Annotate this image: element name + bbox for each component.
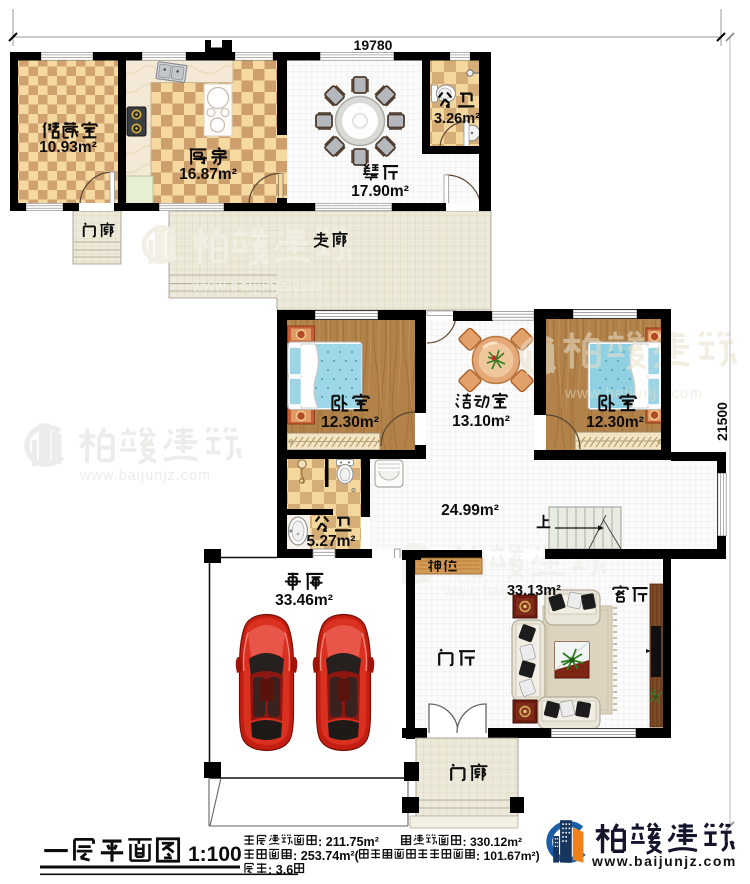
svg-text:: 101.67m²): : 101.67m²) bbox=[476, 849, 540, 863]
svg-text:3.26m²: 3.26m² bbox=[434, 111, 480, 127]
svg-text:www.baijunjz.com: www.baijunjz.com bbox=[79, 468, 211, 484]
svg-text:www.baijunjz.com: www.baijunjz.com bbox=[564, 385, 703, 402]
svg-text:12.30m²: 12.30m² bbox=[586, 414, 644, 431]
svg-text:12.30m²: 12.30m² bbox=[321, 414, 379, 431]
svg-text:www.baijunjz.com: www.baijunjz.com bbox=[191, 279, 323, 295]
svg-text:17.90m²: 17.90m² bbox=[351, 183, 409, 200]
svg-text:www.baijunjz.com: www.baijunjz.com bbox=[591, 853, 737, 869]
svg-text:: 253.74m²(: : 253.74m²( bbox=[293, 849, 360, 863]
svg-text:1:100: 1:100 bbox=[188, 843, 242, 866]
svg-text:19780: 19780 bbox=[354, 37, 393, 53]
svg-text:5.27m²: 5.27m² bbox=[306, 533, 355, 550]
svg-text:: 3.6: : 3.6 bbox=[268, 863, 293, 877]
svg-text:24.99m²: 24.99m² bbox=[441, 502, 499, 519]
svg-text:10.93m²: 10.93m² bbox=[39, 139, 97, 156]
svg-text:: 211.75m²: : 211.75m² bbox=[318, 835, 379, 849]
svg-text:13.10m²: 13.10m² bbox=[452, 413, 510, 430]
svg-text:33.13m²: 33.13m² bbox=[507, 583, 561, 599]
svg-text:21500: 21500 bbox=[714, 402, 730, 441]
svg-text:33.46m²: 33.46m² bbox=[275, 592, 333, 609]
svg-text:16.87m²: 16.87m² bbox=[179, 166, 237, 183]
svg-text:: 330.12m²: : 330.12m² bbox=[463, 835, 523, 849]
